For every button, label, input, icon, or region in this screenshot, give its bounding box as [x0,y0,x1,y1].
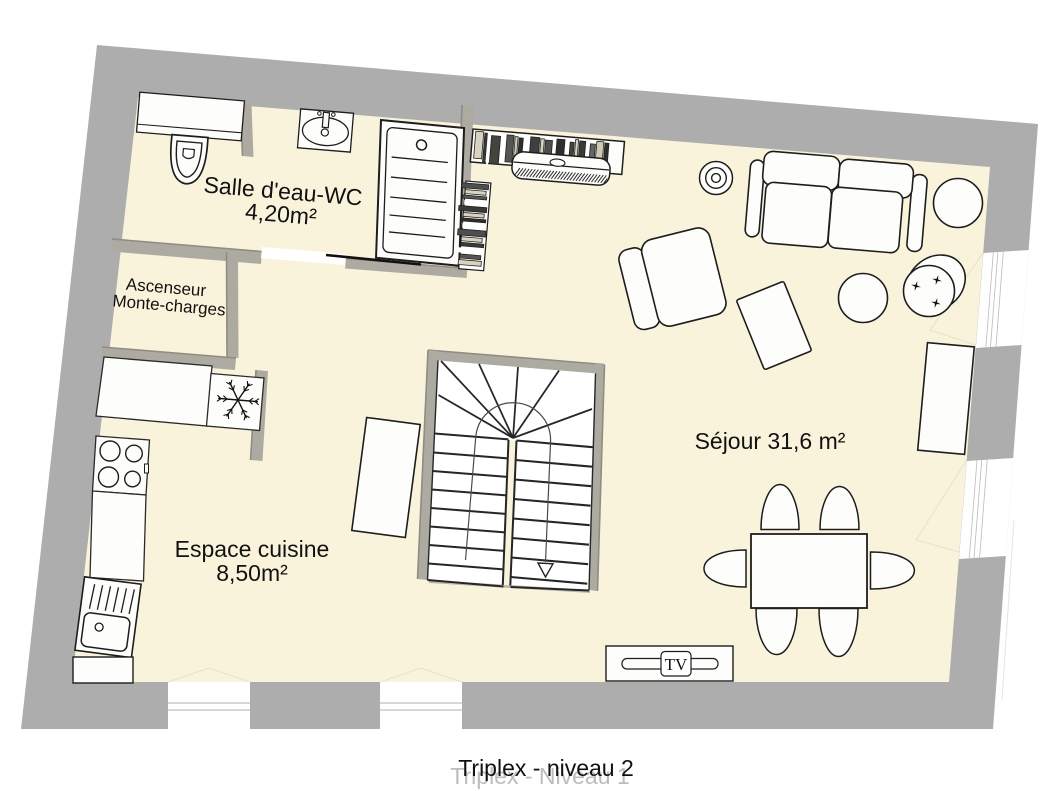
svg-text:Séjour 31,6 m²: Séjour 31,6 m² [695,428,846,454]
svg-text:TV: TV [665,655,688,674]
svg-text:Espace cuisine: Espace cuisine [175,536,330,562]
svg-text:Triplex - niveau 2: Triplex - niveau 2 [458,755,634,781]
svg-text:8,50m²: 8,50m² [216,560,288,586]
